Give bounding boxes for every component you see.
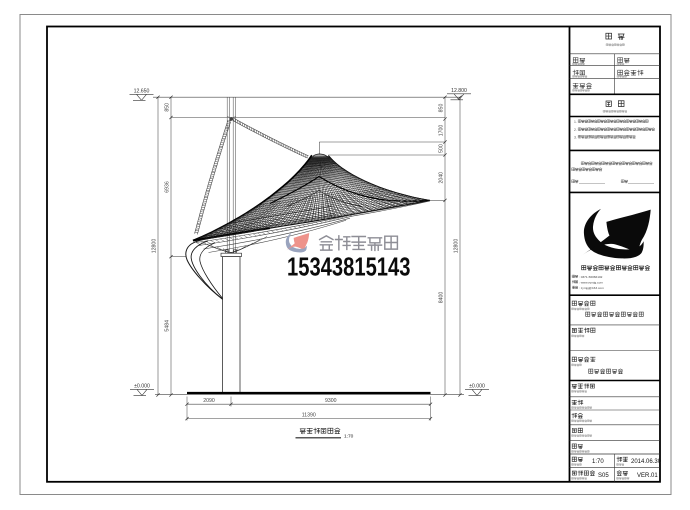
svg-text:11390: 11390 (302, 413, 316, 419)
svg-text:12.650: 12.650 (134, 89, 150, 95)
svg-text:: 0371-56066102: : 0371-56066102 (579, 275, 603, 279)
svg-text:2014.06.30: 2014.06.30 (631, 459, 662, 465)
svg-text:9300: 9300 (325, 398, 337, 404)
svg-text:2040: 2040 (439, 172, 445, 184)
svg-text:VER.01: VER.01 (637, 473, 658, 479)
svg-text:2.: 2. (574, 128, 577, 132)
svg-text:12800: 12800 (152, 239, 158, 254)
svg-text:850: 850 (439, 104, 445, 113)
svg-text:±0.000: ±0.000 (469, 384, 485, 390)
svg-text:±0.000: ±0.000 (134, 384, 150, 390)
svg-text:: zymjg@163.com: : zymjg@163.com (579, 286, 604, 290)
svg-text:850: 850 (165, 103, 171, 112)
svg-text:12.800: 12.800 (451, 88, 467, 94)
svg-text:2090: 2090 (203, 398, 215, 404)
svg-text:: www.zymjg.com: : www.zymjg.com (579, 280, 603, 284)
svg-text:3.: 3. (574, 135, 577, 139)
svg-text:1700: 1700 (439, 125, 445, 137)
svg-text:1.: 1. (574, 120, 577, 124)
svg-text:6936: 6936 (165, 181, 171, 193)
svg-text:5484: 5484 (165, 320, 171, 332)
svg-text:1:70: 1:70 (344, 434, 354, 440)
svg-text:1:70: 1:70 (592, 459, 604, 465)
svg-text:8400: 8400 (439, 292, 445, 304)
svg-text:15343815143: 15343815143 (287, 254, 411, 282)
svg-text:S05: S05 (598, 473, 609, 479)
svg-text:500: 500 (439, 144, 445, 153)
svg-text:12800: 12800 (454, 239, 460, 254)
